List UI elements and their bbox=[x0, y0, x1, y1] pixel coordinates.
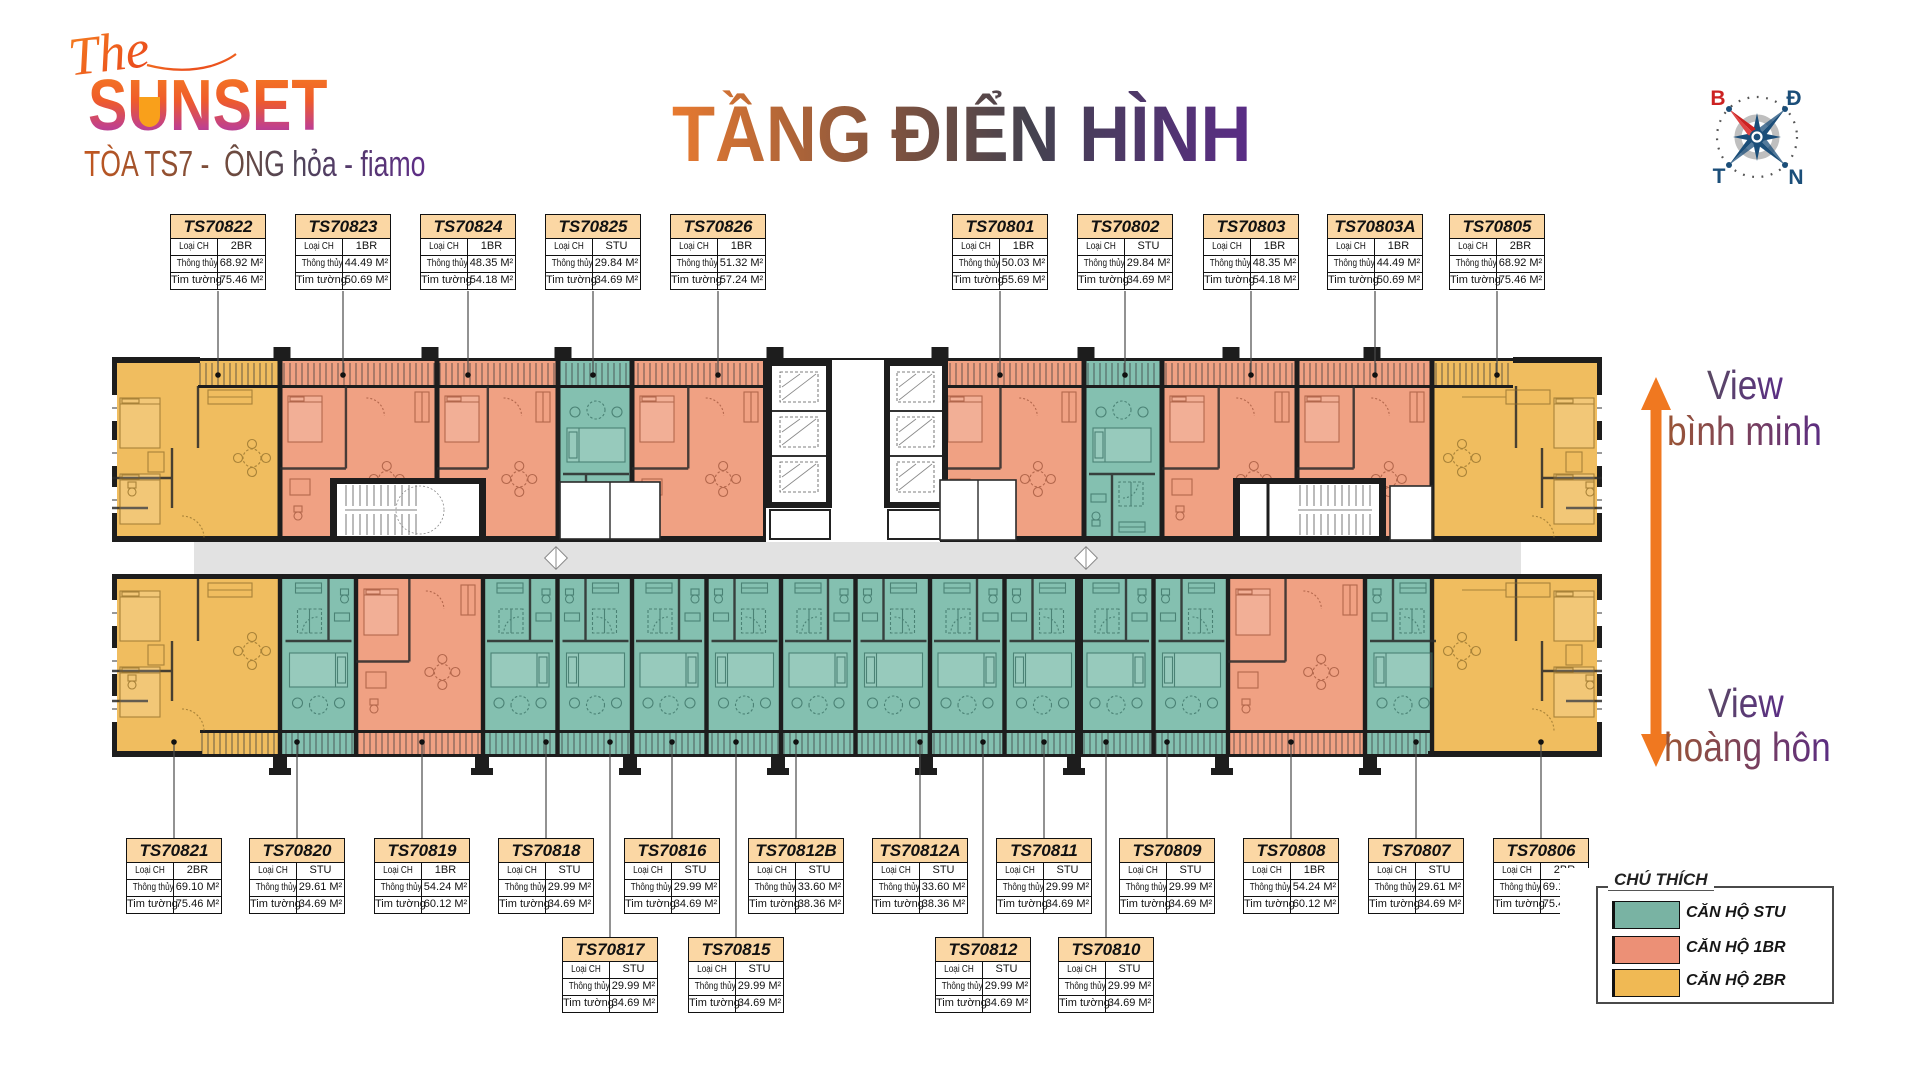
svg-text:Đ: Đ bbox=[1786, 87, 1801, 110]
svg-text:T: T bbox=[1713, 165, 1726, 188]
svg-text:N: N bbox=[1788, 166, 1803, 189]
svg-text:B: B bbox=[1710, 87, 1725, 110]
